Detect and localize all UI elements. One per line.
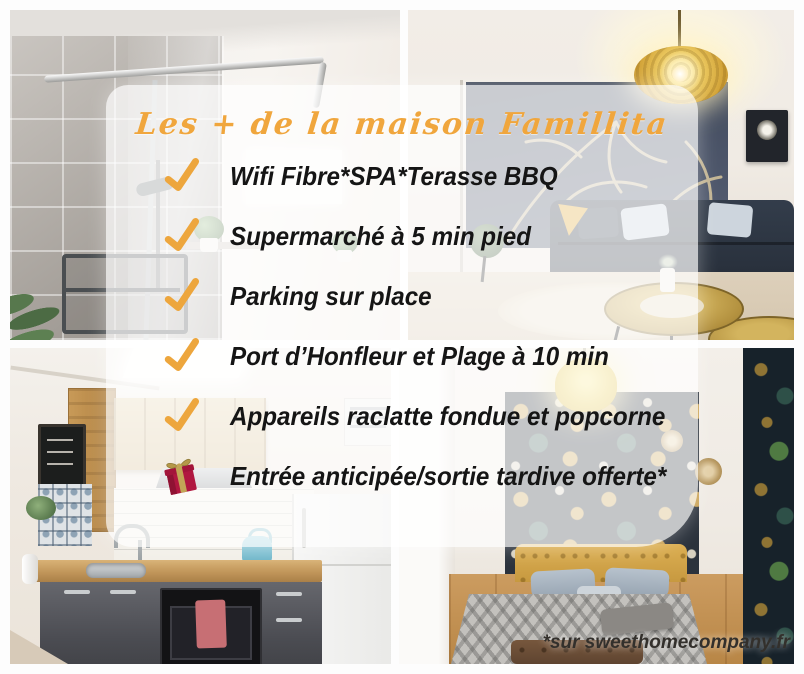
- lamp-bulb: [672, 66, 688, 82]
- chalk-text-line: [47, 463, 73, 465]
- rental-promo-poster: Les + de la maison Famillita Wifi Fibre*…: [0, 0, 804, 674]
- amenity-label: Appareils raclatte fondue et popcorne: [230, 401, 665, 432]
- amenity-label: Entrée anticipée/sortie tardive offerte*: [230, 461, 666, 492]
- plant-icon: [26, 496, 56, 520]
- footnote-credit: *sur sweethomecompany.fr: [543, 632, 790, 654]
- cabinet-handle: [276, 592, 302, 596]
- check-icon: [156, 393, 208, 439]
- wall-art-mandala: [757, 120, 777, 140]
- chalk-text-line: [47, 439, 73, 441]
- amenity-row: Port d’Honfleur et Plage à 10 min: [106, 326, 698, 386]
- amenity-row: Parking sur place: [106, 266, 698, 326]
- amenity-row: Appareils raclatte fondue et popcorne: [106, 386, 698, 446]
- check-icon: [156, 273, 208, 319]
- check-icon: [156, 213, 208, 259]
- cabinet-handle: [64, 590, 90, 594]
- amenity-row: Supermarché à 5 min pied: [106, 206, 698, 266]
- kitchen-sink: [86, 563, 146, 578]
- check-icon: [156, 333, 208, 379]
- pink-towel: [195, 599, 227, 648]
- pendant-lamp-cord: [678, 10, 681, 50]
- wicker-wall-decor: [695, 458, 722, 485]
- amenity-label: Wifi Fibre*SPA*Terasse BBQ: [230, 161, 558, 192]
- sofa-cushion: [707, 202, 754, 238]
- gift-icon: [156, 453, 208, 499]
- chalk-text-line: [47, 451, 73, 453]
- wood-countertop: [34, 560, 322, 582]
- paper-towel-roll: [22, 554, 38, 584]
- poster-title: Les + de la maison Famillita: [124, 107, 680, 142]
- dark-floral-curtain: [743, 348, 794, 664]
- amenity-label: Parking sur place: [230, 281, 432, 312]
- amenities-card: Les + de la maison Famillita Wifi Fibre*…: [106, 85, 698, 547]
- amenity-label: Port d’Honfleur et Plage à 10 min: [230, 341, 609, 372]
- kitchen-chalkboard: [38, 424, 86, 488]
- check-icon: [156, 153, 208, 199]
- amenity-row: Wifi Fibre*SPA*Terasse BBQ: [106, 146, 698, 206]
- amenity-row: Entrée anticipée/sortie tardive offerte*: [106, 446, 698, 506]
- cabinet-handle: [110, 590, 136, 594]
- amenity-label: Supermarché à 5 min pied: [230, 221, 531, 252]
- cabinet-handle: [276, 618, 302, 622]
